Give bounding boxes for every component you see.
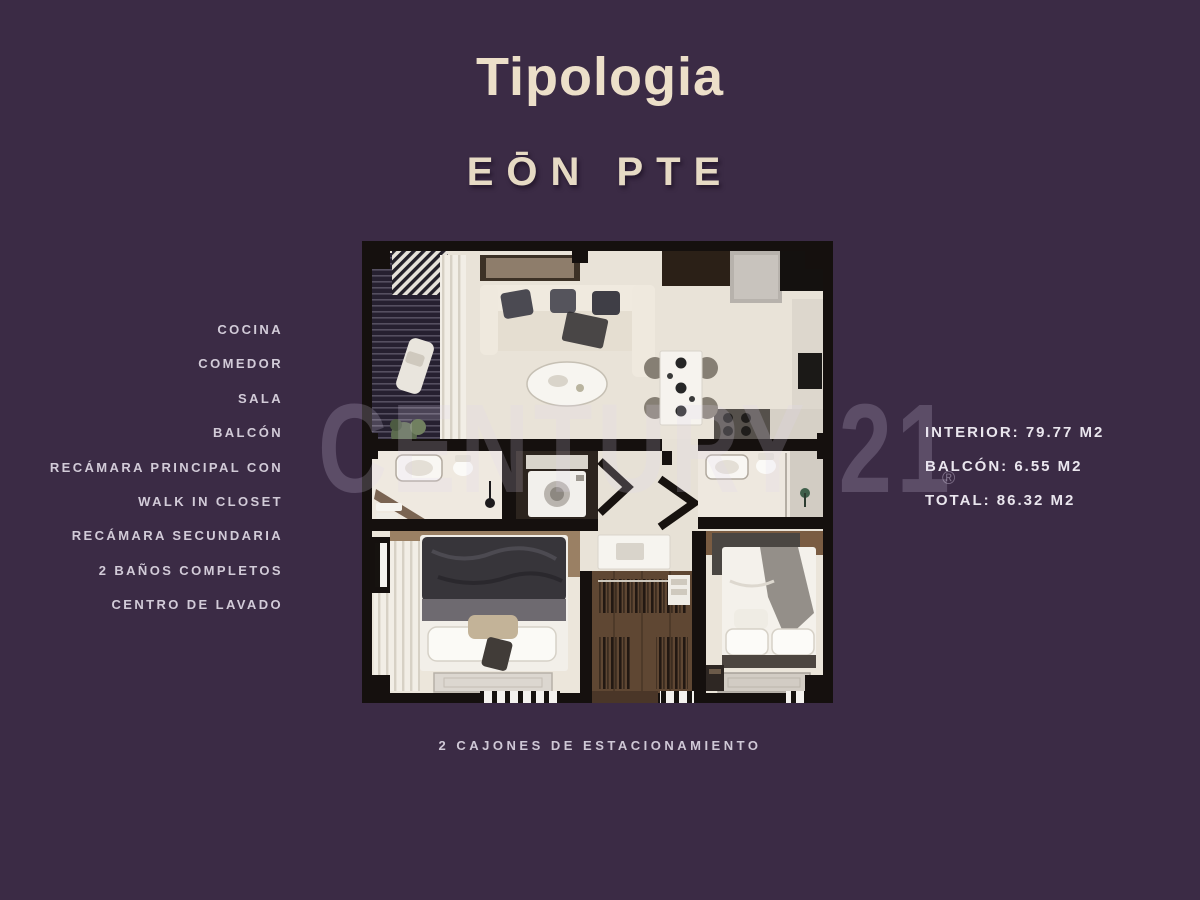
feature-item: SALA [50,382,283,416]
typology-slide: Tipologia EŌN PTE COCINA COMEDOR SALA BA… [0,0,1200,900]
area-balcony: BALCÓN: 6.55 M2 [925,450,1104,484]
unit-name: EŌN PTE [0,150,1200,195]
secondary-bedroom-area [692,531,823,693]
area-total: TOTAL: 86.32 M2 [925,484,1104,518]
feature-item: COMEDOR [50,347,283,381]
hall-doorway [662,439,698,451]
master-bedroom-area [372,531,580,693]
floor-plan-image [362,241,833,703]
area-stats: INTERIOR: 79.77 M2 BALCÓN: 6.55 M2 TOTAL… [925,416,1104,518]
plan-wall [372,519,598,531]
feature-list: COCINA COMEDOR SALA BALCÓN RECÁMARA PRIN… [50,313,283,623]
bathroom-2-area [698,451,823,519]
laundry-area [516,451,598,521]
feature-item: BALCÓN [50,416,283,450]
feature-item: CENTRO DE LAVADO [50,588,283,622]
area-interior: INTERIOR: 79.77 M2 [925,416,1104,450]
parking-note: 2 CAJONES DE ESTACIONAMIENTO [0,738,1200,753]
plan-wall [698,517,823,529]
feature-item: WALK IN CLOSET [50,485,283,519]
plan-wall-mid [372,439,823,451]
feature-item: RECÁMARA SECUNDARIA [50,519,283,553]
feature-item: COCINA [50,313,283,347]
balcony-area [372,251,466,453]
plan-wall [502,451,516,521]
feature-item: 2 BAÑOS COMPLETOS [50,554,283,588]
feature-item: RECÁMARA PRINCIPAL CON [50,451,283,485]
page-title: Tipologia [0,46,1200,108]
bathroom-1-area [372,451,502,528]
